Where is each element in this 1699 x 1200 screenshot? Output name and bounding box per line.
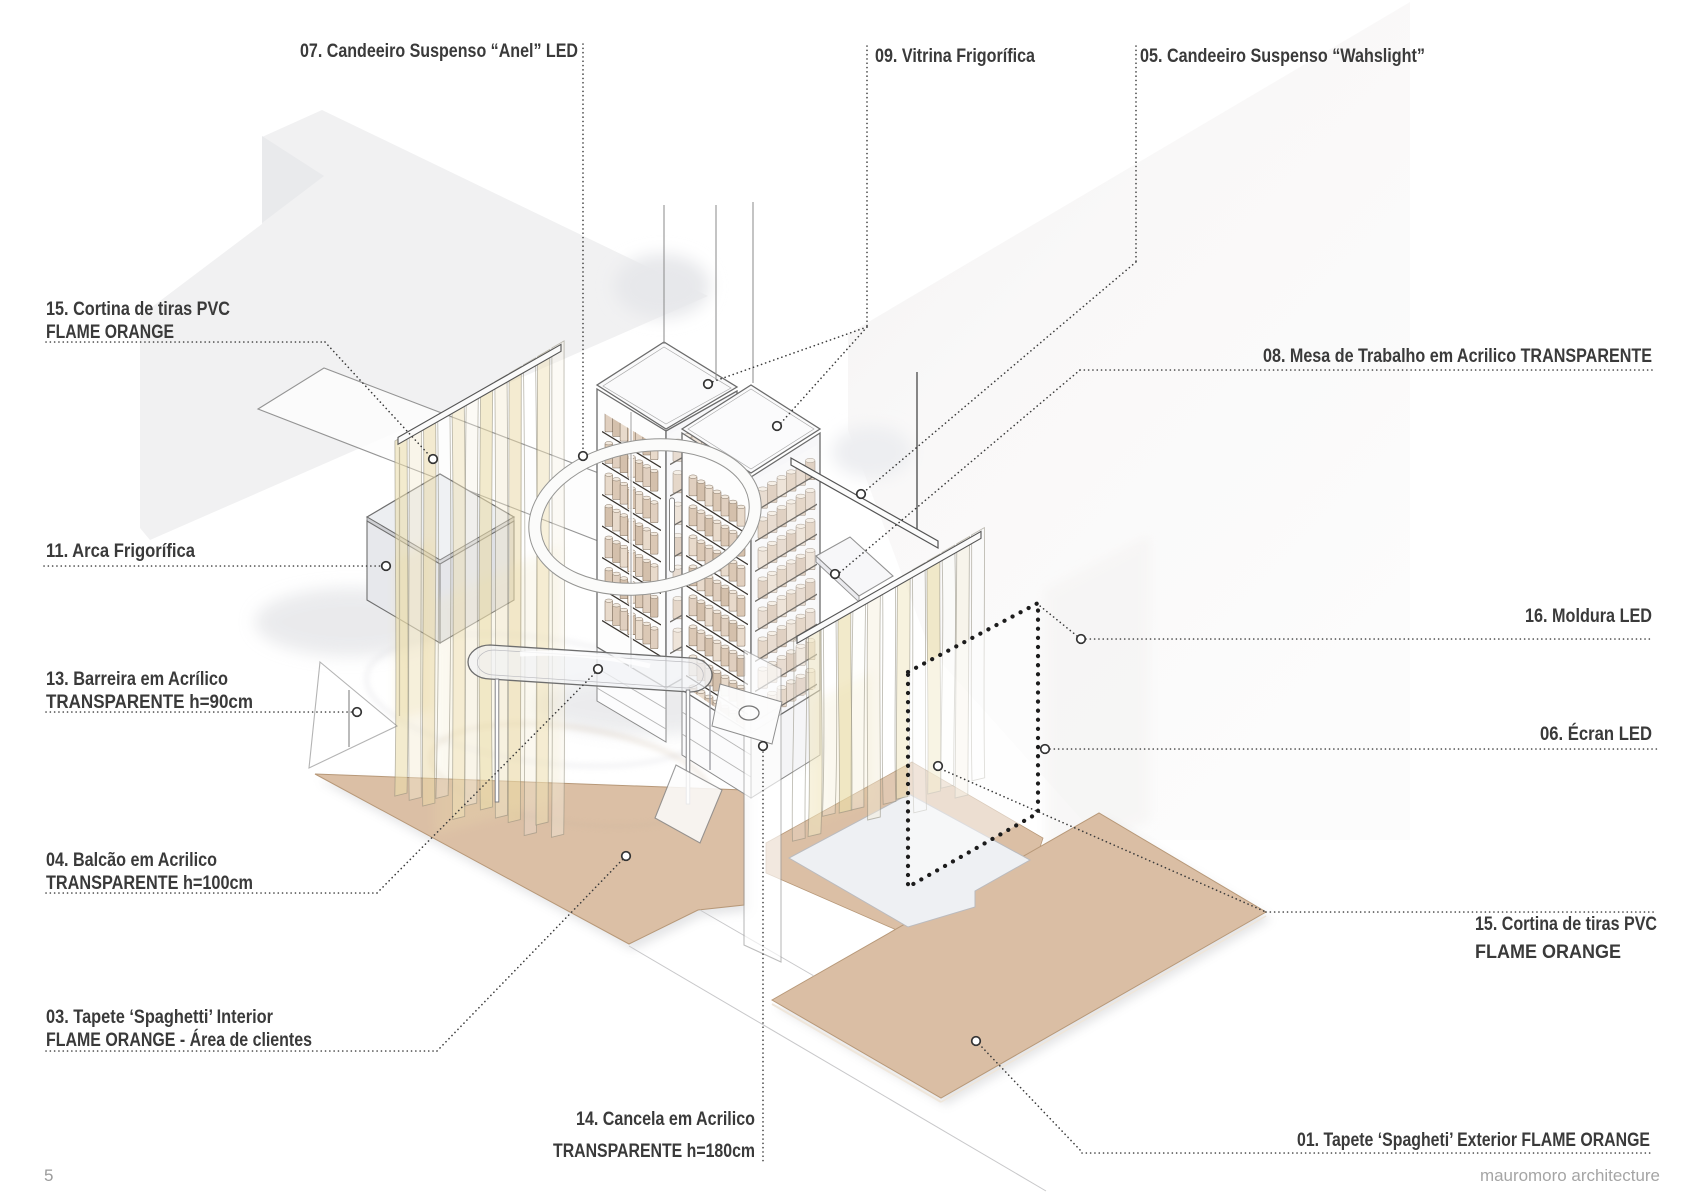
svg-text:04. Balcão em Acrilico: 04. Balcão em Acrilico [46, 850, 217, 871]
svg-text:mauromoro architecture: mauromoro architecture [1480, 1166, 1660, 1185]
svg-text:05. Candeeiro Suspenso “Wahsli: 05. Candeeiro Suspenso “Wahslight” [1140, 46, 1425, 67]
svg-text:TRANSPARENTE h=100cm: TRANSPARENTE h=100cm [46, 873, 253, 894]
svg-text:15. Cortina de tiras PVC: 15. Cortina de tiras PVC [1475, 914, 1657, 935]
svg-text:07. Candeeiro Suspenso “Anel”: 07. Candeeiro Suspenso “Anel” LED [300, 41, 578, 62]
svg-text:06. Écran LED: 06. Écran LED [1540, 723, 1652, 745]
svg-text:TRANSPARENTE h=90cm: TRANSPARENTE h=90cm [46, 692, 253, 713]
svg-text:FLAME ORANGE: FLAME ORANGE [1475, 942, 1621, 963]
svg-text:FLAME ORANGE: FLAME ORANGE [46, 322, 174, 343]
svg-text:FLAME ORANGE - Área de cliente: FLAME ORANGE - Área de clientes [46, 1029, 312, 1051]
svg-text:16. Moldura LED: 16. Moldura LED [1525, 606, 1652, 627]
svg-text:08. Mesa de Trabalho em Acrili: 08. Mesa de Trabalho em Acrilico TRANSPA… [1263, 346, 1652, 367]
svg-text:14. Cancela em Acrilico: 14. Cancela em Acrilico [576, 1109, 755, 1130]
svg-text:15. Cortina de tiras PVC: 15. Cortina de tiras PVC [46, 299, 230, 320]
svg-text:11. Arca Frigorífica: 11. Arca Frigorífica [46, 541, 195, 562]
svg-text:TRANSPARENTE h=180cm: TRANSPARENTE h=180cm [553, 1141, 755, 1162]
svg-text:5: 5 [44, 1166, 53, 1185]
svg-text:03. Tapete ‘Spaghetti’ Interio: 03. Tapete ‘Spaghetti’ Interior [46, 1007, 274, 1028]
svg-text:13. Barreira em Acrílico: 13. Barreira em Acrílico [46, 669, 228, 690]
svg-text:09. Vitrina Frigorífica: 09. Vitrina Frigorífica [875, 46, 1035, 67]
svg-text:01. Tapete ‘Spagheti’ Exterior: 01. Tapete ‘Spagheti’ Exterior FLAME ORA… [1297, 1130, 1650, 1151]
